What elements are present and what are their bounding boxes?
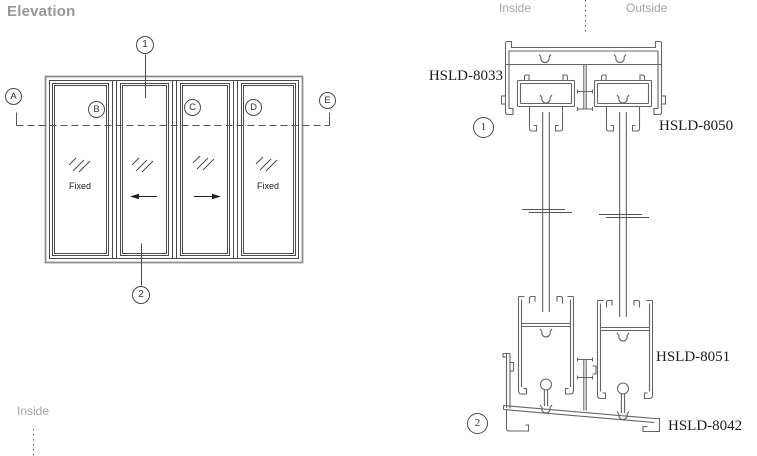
roller-right bbox=[618, 383, 629, 394]
section-marker-2-right: 2 bbox=[467, 413, 488, 434]
section-drawing bbox=[502, 0, 666, 432]
panel-label-fixed-left: Fixed bbox=[62, 181, 98, 191]
elevation-drawing bbox=[17, 55, 330, 286]
grid-marker-e: E bbox=[319, 92, 336, 109]
profile-bottom-sash-left-hsld-8051 bbox=[519, 297, 574, 407]
grid-marker-b: B bbox=[88, 101, 105, 118]
drawing-canvas bbox=[0, 0, 757, 456]
window-frame-outer bbox=[46, 77, 303, 263]
arrow-left-icon bbox=[130, 194, 157, 199]
grid-marker-a: A bbox=[5, 88, 22, 105]
profile-bottom-sash-right-hsld-8051 bbox=[598, 301, 653, 414]
section-marker-1-right: 1 bbox=[473, 117, 494, 138]
arrow-right-icon bbox=[194, 194, 221, 199]
profile-label-hsld-8051: HSLD-8051 bbox=[656, 349, 730, 366]
panel-label-fixed-right: Fixed bbox=[250, 181, 286, 191]
grid-marker-c: C bbox=[184, 99, 201, 116]
profile-label-hsld-8033: HSLD-8033 bbox=[415, 68, 503, 85]
technical-drawing-page: Elevation A B C D E 1 2 Fixed Fixed Insi… bbox=[0, 0, 757, 456]
section-marker-1: 1 bbox=[136, 36, 154, 54]
roller-left bbox=[541, 379, 552, 390]
profile-label-hsld-8050: HSLD-8050 bbox=[659, 118, 733, 135]
glass-pane-left bbox=[522, 112, 572, 312]
center-interlock bbox=[578, 358, 597, 411]
profile-label-hsld-8042: HSLD-8042 bbox=[668, 418, 742, 435]
inside-label-section: Inside bbox=[499, 1, 531, 15]
glass-pane-right bbox=[599, 112, 649, 317]
section-marker-2: 2 bbox=[132, 286, 150, 304]
inside-label-bottom: Inside bbox=[17, 404, 49, 418]
page-title: Elevation bbox=[7, 3, 76, 20]
outside-label-section: Outside bbox=[626, 1, 667, 15]
mullions bbox=[113, 81, 238, 259]
grid-marker-d: D bbox=[245, 99, 262, 116]
